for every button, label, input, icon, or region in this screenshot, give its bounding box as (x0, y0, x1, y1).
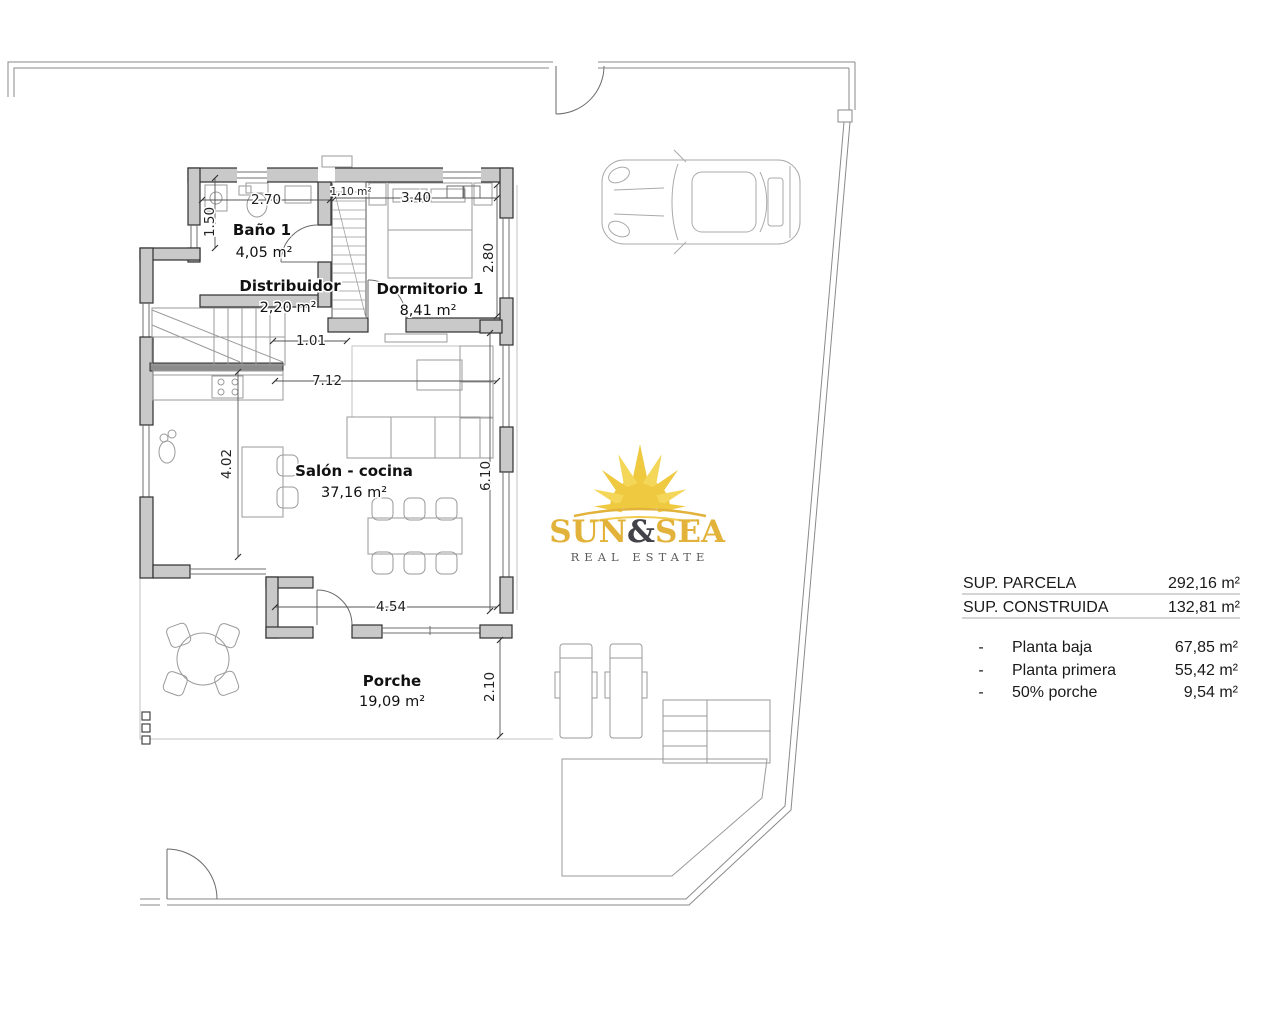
surface-summary: SUP. PARCELA 292,16 m² SUP. CONSTRUIDA 1… (962, 575, 1241, 701)
fence-post (838, 110, 852, 122)
summary-item-label: Planta baja (1012, 639, 1092, 656)
terrace-outline (140, 578, 767, 876)
summary-row-value: 132,81 m² (1168, 599, 1241, 616)
gate-top (556, 66, 604, 114)
patio-outline (562, 759, 767, 876)
stool (277, 487, 298, 508)
dim-hall-opening: 1.01 (296, 333, 326, 349)
coffee-table (417, 360, 462, 390)
exterior-steps (663, 700, 770, 763)
room-distribuidor-area: 2,20 m² (260, 300, 317, 316)
sun-icon (574, 444, 706, 522)
floor-plan-page: 2.70 1.50 1,10 m² 3.40 2.80 1.01 7.12 4.… (0, 0, 1280, 1024)
summary-item-bullet: - (978, 662, 983, 679)
kitchen-furniture (153, 371, 298, 517)
car (602, 150, 800, 254)
summary-item-label: 50% porche (1012, 684, 1097, 701)
summary-row-label: SUP. PARCELA (963, 575, 1077, 592)
tv-sideboard (385, 334, 447, 342)
entry-step (322, 156, 352, 167)
kitchen-island (242, 447, 283, 517)
room-porche-name: Porche (363, 672, 421, 690)
logo-ampersand: & (627, 514, 655, 550)
dim-bedroom-width: 3.40 (401, 190, 431, 206)
porch-door (317, 590, 352, 625)
dining-set (368, 498, 462, 574)
sofa (347, 346, 493, 458)
dim-living-width: 7.12 (312, 373, 342, 389)
stair-shaft (332, 182, 366, 318)
summary-row-value: 292,16 m² (1168, 575, 1241, 592)
dim-bath-width: 2.70 (251, 192, 281, 208)
sun-lounger (605, 644, 647, 738)
room-porche-area: 19,09 m² (359, 694, 425, 710)
summary-item-bullet: - (978, 639, 983, 656)
room-distribuidor-name: Distribuidor (239, 277, 341, 295)
summary-item-value: 55,42 m² (1175, 662, 1239, 679)
room-dormitorio-name: Dormitorio 1 (377, 280, 484, 298)
dim-bedroom-depth: 2.80 (481, 243, 497, 273)
summary-item-value: 67,85 m² (1175, 639, 1239, 656)
floor-plan-drawing: 2.70 1.50 1,10 m² 3.40 2.80 1.01 7.12 4.… (0, 0, 1280, 1024)
agency-logo: SUN & SEA REAL ESTATE (549, 444, 726, 564)
room-salon-area: 37,16 m² (321, 485, 387, 501)
summary-item-label: Planta primera (1012, 662, 1116, 679)
garden-table-set (162, 622, 241, 697)
room-bano-name: Baño 1 (233, 221, 291, 239)
sun-loungers (555, 644, 647, 738)
logo-subtitle: REAL ESTATE (571, 550, 710, 564)
sun-lounger (555, 644, 597, 738)
summary-item-bullet: - (978, 684, 983, 701)
site-boundary (8, 62, 855, 905)
room-dormitorio-area: 8,41 m² (400, 303, 457, 319)
logo-word-sea: SEA (655, 514, 726, 550)
logo-word-sun: SUN (549, 514, 627, 550)
summary-row-label: SUP. CONSTRUIDA (963, 599, 1109, 616)
summary-item-value: 9,54 m² (1184, 684, 1239, 701)
gate-bottom (167, 849, 217, 899)
sink (159, 430, 176, 463)
dim-porch-width: 4.54 (376, 599, 406, 615)
dim-living-depth: 6.10 (478, 461, 494, 491)
room-bano-area: 4,05 m² (236, 245, 293, 261)
staircase (152, 308, 285, 365)
dim-bath-depth: 1.50 (202, 207, 218, 237)
living-furniture (347, 334, 493, 574)
dim-porch-depth: 2.10 (482, 672, 498, 702)
utility-markers (142, 712, 150, 744)
dim-shaft-area: 1,10 m² (330, 186, 371, 198)
room-salon-name: Salón - cocina (295, 462, 413, 480)
entry-door-opening (318, 167, 335, 183)
dim-kitchen-depth: 4.02 (219, 449, 235, 479)
